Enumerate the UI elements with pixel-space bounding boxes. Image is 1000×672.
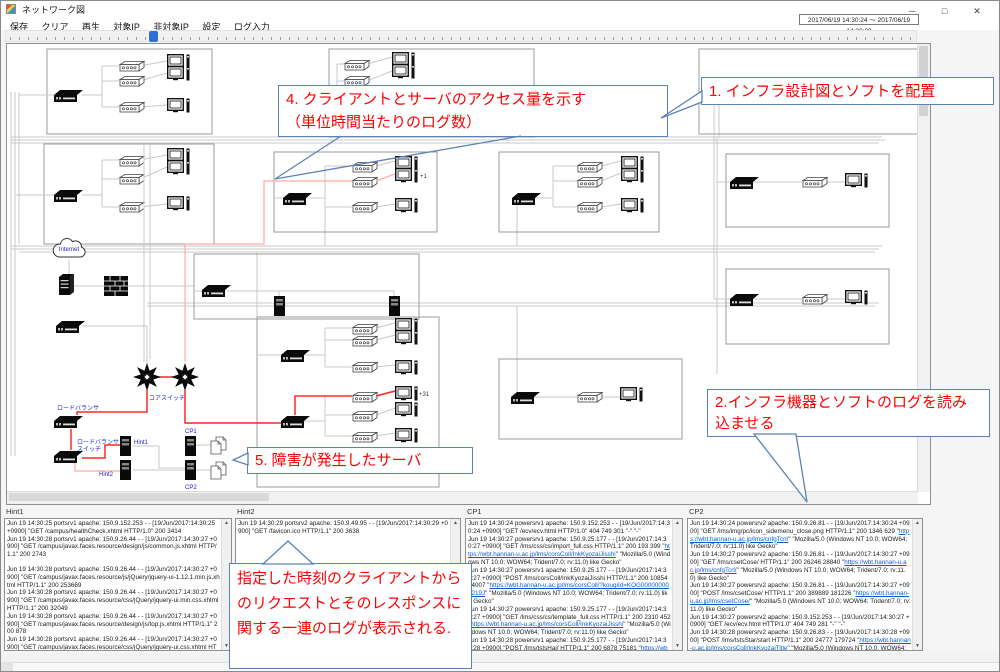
app-icon bbox=[6, 4, 16, 14]
pc-icon[interactable] bbox=[396, 169, 418, 183]
log-scrollbar[interactable]: ▲▼ bbox=[912, 519, 922, 650]
switch-icon[interactable] bbox=[281, 416, 310, 428]
switch-icon[interactable] bbox=[730, 177, 759, 189]
log-entry: Jun 19 14:30:28 powersrv2 apache: 150.9.… bbox=[690, 629, 911, 651]
server-cp1-icon[interactable] bbox=[185, 436, 196, 456]
cluster-row2-midright bbox=[499, 152, 659, 232]
mini-switch-icon[interactable] bbox=[353, 337, 377, 347]
hscroll-thumb[interactable] bbox=[9, 493, 269, 501]
scroll-down-icon[interactable]: ▼ bbox=[913, 643, 922, 649]
log-entry: Jun 19 14:30:27 powersrv1 apache: 150.9.… bbox=[468, 536, 671, 567]
bottom-scroll-area bbox=[1, 653, 1000, 672]
callout-2-text: 2.インフラ機器とソフトのログを読み込ませる bbox=[715, 394, 967, 432]
switch-icon[interactable] bbox=[54, 90, 83, 102]
pc-icon[interactable] bbox=[396, 403, 418, 417]
core-switch-icon[interactable] bbox=[171, 363, 199, 391]
log-entry: Jun 19 14:30:28 portsrv1 apache: 150.9.2… bbox=[7, 636, 220, 651]
pc-icon[interactable] bbox=[168, 161, 190, 175]
pc-icon[interactable] bbox=[396, 429, 418, 443]
log-panel-cp2: CP2Jun 19 14:30:24 powersrv2 apache: 150… bbox=[687, 507, 923, 653]
mini-switch-icon[interactable] bbox=[353, 178, 377, 188]
cluster-row3-midright bbox=[499, 359, 682, 439]
pc-icon[interactable] bbox=[846, 174, 868, 188]
switch-icon[interactable] bbox=[730, 294, 759, 306]
log-panel-row: Hint1Jun 19 14:30:25 portsrv1 apache: 15… bbox=[1, 507, 1000, 653]
mini-switch-icon[interactable] bbox=[578, 163, 602, 173]
switch-icon[interactable] bbox=[512, 193, 541, 205]
hint1-label: Hint1 bbox=[134, 440, 149, 446]
log-entry: Jun 19 14:30:29 portsrv2 apache: 150.9.4… bbox=[238, 520, 449, 536]
access-count-plus1: +1 bbox=[420, 174, 428, 180]
callout-4-access-volume: 4. クライアントとサーバのアクセス量を示す （単位時間当たりのログ数） bbox=[278, 85, 668, 137]
mini-switch-icon[interactable] bbox=[120, 103, 144, 113]
switch-icon[interactable] bbox=[283, 193, 312, 205]
scroll-up-icon[interactable]: ▲ bbox=[222, 520, 231, 526]
pc-icon[interactable] bbox=[621, 388, 643, 402]
log-entry: Jun 19 14:30:27 powersrv2 apache: 150.9.… bbox=[690, 582, 911, 613]
log-text-area[interactable]: Jun 19 14:30:24 powersrv1 apache: 150.9.… bbox=[465, 518, 683, 651]
pc-icon[interactable] bbox=[393, 65, 415, 79]
callout-log-explanation: 指定した時刻のクライアントからのリクエストとそのレスポンスに関する一連のログが表… bbox=[229, 563, 472, 669]
callout-4-line1: 4. クライアントとサーバのアクセス量を示す bbox=[286, 88, 660, 111]
callout-1-text: 1. インフラ設計図とソフトを配置 bbox=[709, 83, 935, 100]
callout-5-failed-server: 5. 障害が発生したサーバ bbox=[247, 447, 473, 474]
pc-icon[interactable] bbox=[396, 331, 418, 345]
scroll-down-icon[interactable]: ▼ bbox=[673, 643, 682, 649]
slider-ticks bbox=[10, 37, 912, 40]
callout-1-place-infra: 1. インフラ設計図とソフトを配置 bbox=[701, 77, 994, 105]
switch-icon[interactable] bbox=[281, 350, 310, 362]
log-entry: Jun 19 14:30:28 powersrv1 apache: 150.9.… bbox=[468, 637, 671, 651]
mini-switch-icon[interactable] bbox=[353, 325, 377, 335]
log-entry: Jun 19 14:30:28 portsrv1 apache: 150.9.2… bbox=[7, 613, 220, 636]
lb-and-servers: ロードバランサ ロードバランサ スイッチ Hint1 Hint2 CP1 CP2 bbox=[54, 405, 226, 491]
server-hint2-icon[interactable] bbox=[120, 460, 131, 480]
mini-switch-icon[interactable] bbox=[120, 77, 144, 87]
load-balancer-label: ロードバランサ bbox=[57, 405, 99, 412]
hint2-label: Hint2 bbox=[99, 472, 114, 478]
log-panel-title: CP1 bbox=[465, 507, 683, 518]
date-range-display: 2017/06/19 14:30:24 ～ 2017/06/19 14:30:2… bbox=[799, 14, 919, 25]
core-switch-label: コアスイッチ bbox=[149, 395, 185, 402]
log-entry bbox=[7, 559, 220, 566]
slider-thumb[interactable] bbox=[149, 31, 158, 42]
switch-icon[interactable] bbox=[202, 285, 231, 297]
mini-switch-icon[interactable] bbox=[353, 393, 377, 403]
log-entry: Jun 19 14:30:25 portsrv1 apache: 150.9.1… bbox=[7, 520, 220, 536]
timeline-slider[interactable] bbox=[5, 30, 917, 42]
router-icon[interactable] bbox=[59, 274, 74, 295]
pc-icon[interactable] bbox=[622, 199, 644, 213]
switch-icon[interactable] bbox=[56, 321, 85, 333]
switch-icon[interactable] bbox=[511, 392, 540, 404]
pc-icon[interactable] bbox=[846, 291, 868, 305]
mini-switch-icon[interactable] bbox=[120, 62, 144, 72]
log-panel-title: CP2 bbox=[687, 507, 923, 518]
callout-2-load-logs: 2.インフラ機器とソフトのログを読み込ませる bbox=[707, 389, 990, 437]
switch-icon[interactable] bbox=[54, 190, 83, 202]
app-window: ネットワーク図 ─ □ ✕ 保存 クリア 再生 対象IP 非対象IP 設定 ログ… bbox=[0, 0, 1000, 672]
mini-switch-icon[interactable] bbox=[353, 203, 377, 213]
log-entry: Jun 19 14:30:28 portsrv1 apache: 150.9.2… bbox=[7, 589, 220, 612]
log-file-icon[interactable] bbox=[211, 437, 226, 454]
scroll-up-icon[interactable]: ▲ bbox=[451, 520, 460, 526]
server-cp2-icon[interactable] bbox=[185, 460, 196, 480]
core-switches: コアスイッチ bbox=[133, 363, 199, 402]
mini-switch-icon[interactable] bbox=[353, 363, 377, 373]
mini-switch-icon[interactable] bbox=[120, 203, 144, 213]
pc-icon[interactable] bbox=[168, 197, 190, 211]
server-icon[interactable] bbox=[389, 296, 400, 316]
server-hint1-icon[interactable] bbox=[120, 436, 131, 456]
access-count-plus31: +31 bbox=[419, 392, 430, 398]
scroll-up-icon[interactable]: ▲ bbox=[913, 520, 922, 526]
pc-icon[interactable] bbox=[622, 169, 644, 183]
mini-switch-icon[interactable] bbox=[803, 295, 827, 305]
mini-switch-icon[interactable] bbox=[353, 412, 377, 422]
log-link[interactable]: https://wbt.hannan-u.ac.jp/lms/corsColl/… bbox=[470, 621, 623, 628]
canvas-hscrollbar[interactable] bbox=[7, 491, 918, 504]
load-balancer-icon[interactable] bbox=[54, 416, 83, 428]
log-scrollbar[interactable]: ▲▼ bbox=[672, 519, 682, 650]
bottom-scroll-corner bbox=[1, 662, 13, 672]
cluster-row2-right bbox=[717, 154, 889, 227]
cluster-row2-left bbox=[15, 144, 214, 244]
mini-switch-icon[interactable] bbox=[120, 157, 144, 167]
cp1-label: CP1 bbox=[185, 429, 197, 435]
server-segment bbox=[194, 254, 419, 319]
log-panel-title: Hint1 bbox=[4, 507, 232, 518]
log-panel-hint1: Hint1Jun 19 14:30:25 portsrv1 apache: 15… bbox=[4, 507, 232, 653]
scroll-up-icon[interactable]: ▲ bbox=[673, 520, 682, 526]
mini-switch-icon[interactable] bbox=[353, 163, 377, 173]
pc-icon[interactable] bbox=[396, 199, 418, 213]
pc-icon[interactable] bbox=[396, 387, 418, 401]
pc-icon[interactable] bbox=[396, 361, 418, 375]
window-title: ネットワーク図 bbox=[22, 3, 85, 16]
group-box bbox=[726, 154, 889, 227]
log-file-icon[interactable] bbox=[211, 462, 226, 479]
mini-switch-icon[interactable] bbox=[803, 178, 827, 188]
log-entry: Jun 19 14:30:27 powersrv1 apache: 150.9.… bbox=[468, 606, 671, 637]
mini-switch-icon[interactable] bbox=[578, 393, 602, 403]
pc-icon[interactable] bbox=[168, 99, 190, 113]
log-entry: Jun 19 14:30:27 powersrv2 apache: 150.9.… bbox=[690, 614, 911, 630]
mini-switch-icon[interactable] bbox=[578, 178, 602, 188]
log-panel-title: Hint2 bbox=[235, 507, 461, 518]
log-entry: Jun 19 14:30:27 powersrv2 apache: 150.9.… bbox=[690, 551, 911, 582]
firewall-icon[interactable] bbox=[104, 276, 128, 296]
internet-label: Internet bbox=[59, 247, 80, 253]
cluster-row2-middle: +1 bbox=[274, 152, 437, 232]
log-text-area[interactable]: Jun 19 14:30:25 portsrv1 apache: 150.9.1… bbox=[4, 518, 232, 651]
core-switch-icon[interactable] bbox=[133, 363, 161, 391]
log-entry: Jun 19 14:30:24 powersrv2 apache: 150.9.… bbox=[690, 520, 911, 551]
log-panel-cp1: CP1Jun 19 14:30:24 powersrv1 apache: 150… bbox=[465, 507, 683, 653]
bottom-scrollbar[interactable] bbox=[1, 662, 1000, 672]
log-entry: Jun 19 14:30:27 powersrv1 apache: 150.9.… bbox=[468, 567, 671, 606]
mini-switch-icon[interactable] bbox=[578, 203, 602, 213]
log-text-area[interactable]: Jun 19 14:30:24 powersrv2 apache: 150.9.… bbox=[687, 518, 923, 651]
highlighted-paths bbox=[71, 174, 395, 471]
lb-switch-icon[interactable] bbox=[54, 451, 83, 463]
mini-switch-icon[interactable] bbox=[353, 433, 377, 443]
server-icon[interactable] bbox=[274, 296, 285, 316]
callout-bottom-text: 指定した時刻のクライアントからのリクエストとそのレスポンスに関する一連のログが表… bbox=[237, 570, 461, 637]
log-entry: Jun 19 14:30:28 portsrv1 apache: 150.9.2… bbox=[7, 536, 220, 559]
lb-switch-label-1: ロードバランサ bbox=[77, 439, 119, 446]
callout-5-text: 5. 障害が発生したサーバ bbox=[255, 452, 422, 469]
log-entry: Jun 19 14:30:28 portsrv1 apache: 150.9.2… bbox=[7, 566, 220, 589]
pc-icon[interactable] bbox=[168, 67, 190, 81]
cluster-row1-left bbox=[19, 49, 212, 134]
mini-switch-icon[interactable] bbox=[345, 61, 369, 71]
callout-4-line2: （単位時間当たりのログ数） bbox=[286, 111, 660, 134]
mini-switch-icon[interactable] bbox=[120, 175, 144, 185]
log-entry: Jun 19 14:30:24 powersrv1 apache: 150.9.… bbox=[468, 520, 671, 536]
